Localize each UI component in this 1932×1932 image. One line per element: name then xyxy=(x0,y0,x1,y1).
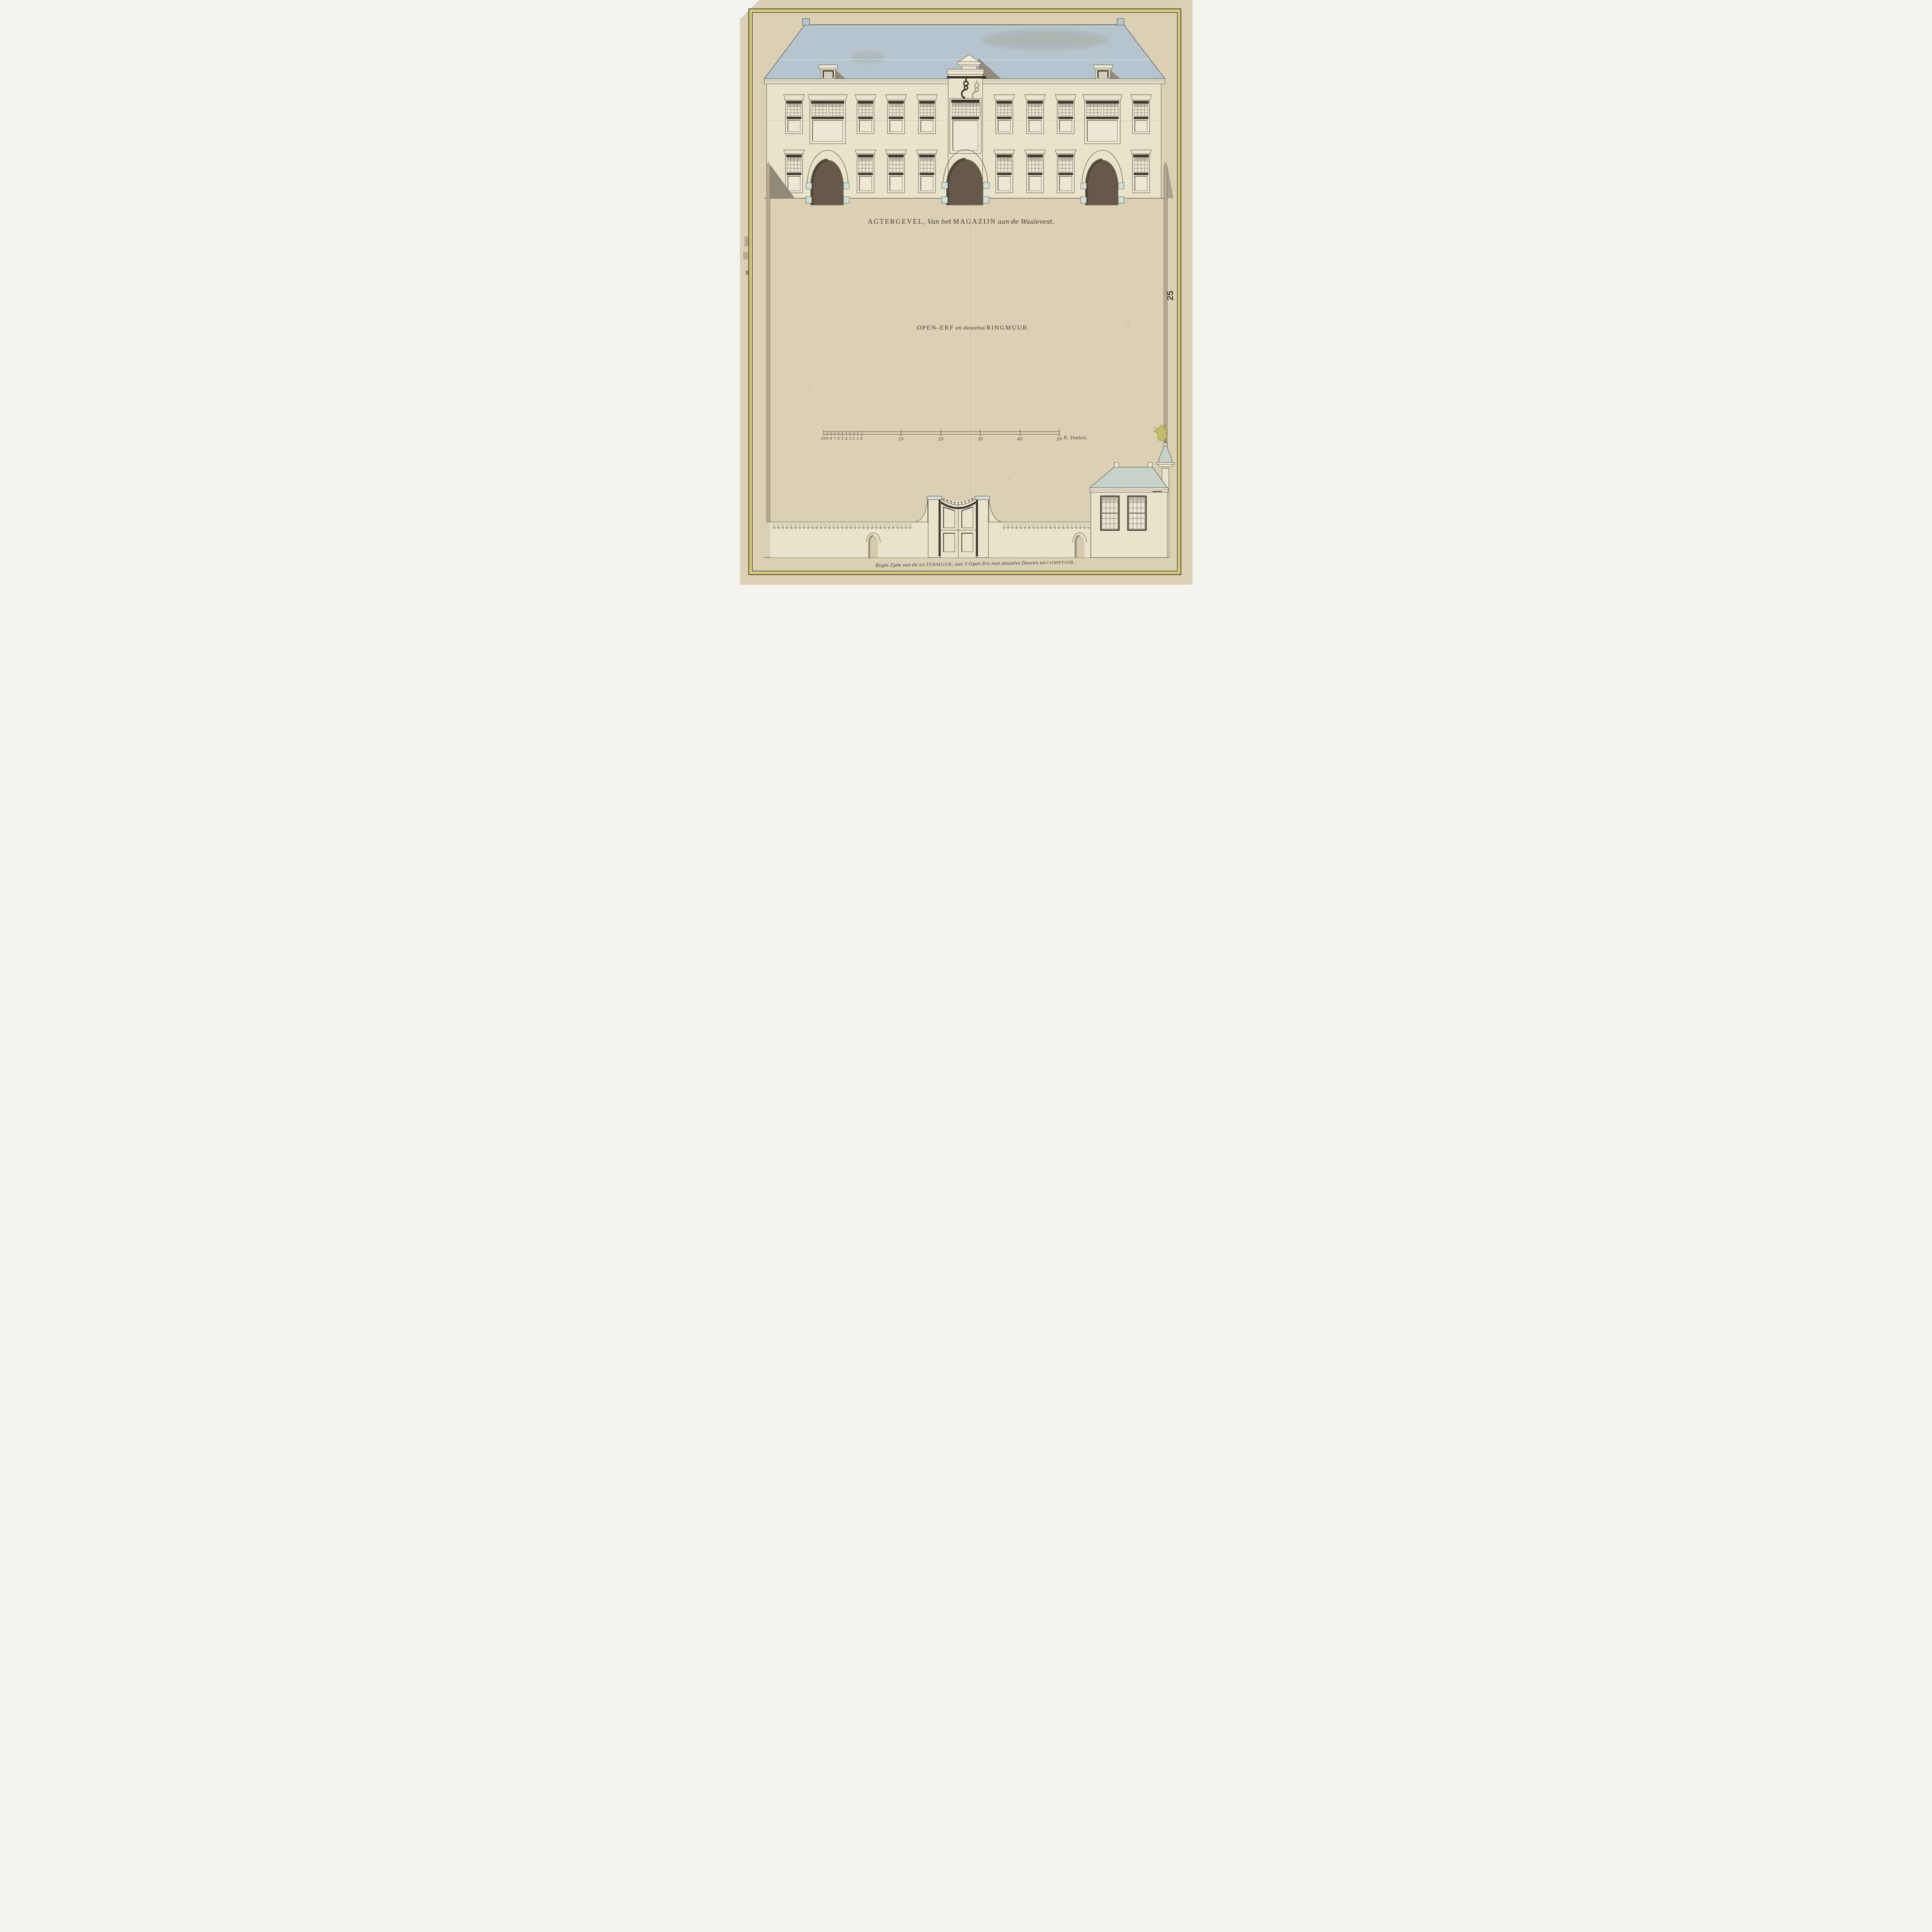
comptoir-chimney-right xyxy=(1148,463,1152,467)
paper-edge-chip xyxy=(743,252,748,260)
drawing-sheet: AGTERGEVEL, Van het MAGAZIJN aan de Waal… xyxy=(740,0,1192,585)
architectural-drawing xyxy=(740,0,1192,585)
wall-corbels-left xyxy=(772,524,912,529)
bay-loading-window xyxy=(950,99,981,153)
left-chimney xyxy=(803,19,810,25)
wall-corbels-right xyxy=(1003,524,1089,529)
yard-gate xyxy=(940,498,976,558)
pier-reveal-right xyxy=(976,500,978,556)
pier-cap-right xyxy=(975,496,990,500)
hoist-cap-neck xyxy=(962,66,976,69)
comptoir-window-left xyxy=(1101,496,1119,530)
hoist-beam xyxy=(947,76,986,78)
warehouse-building xyxy=(740,19,1165,205)
pier-cap-left xyxy=(927,496,942,500)
right-post xyxy=(1164,162,1167,464)
left-post xyxy=(767,162,770,522)
comptoir-window-right xyxy=(1128,496,1146,530)
comptoir-chimney-left xyxy=(1114,463,1119,467)
right-chimney xyxy=(1117,19,1124,25)
paper-edge-chip xyxy=(745,236,748,247)
paper-edge-chip xyxy=(746,270,748,275)
pier-reveal-left xyxy=(939,500,940,556)
